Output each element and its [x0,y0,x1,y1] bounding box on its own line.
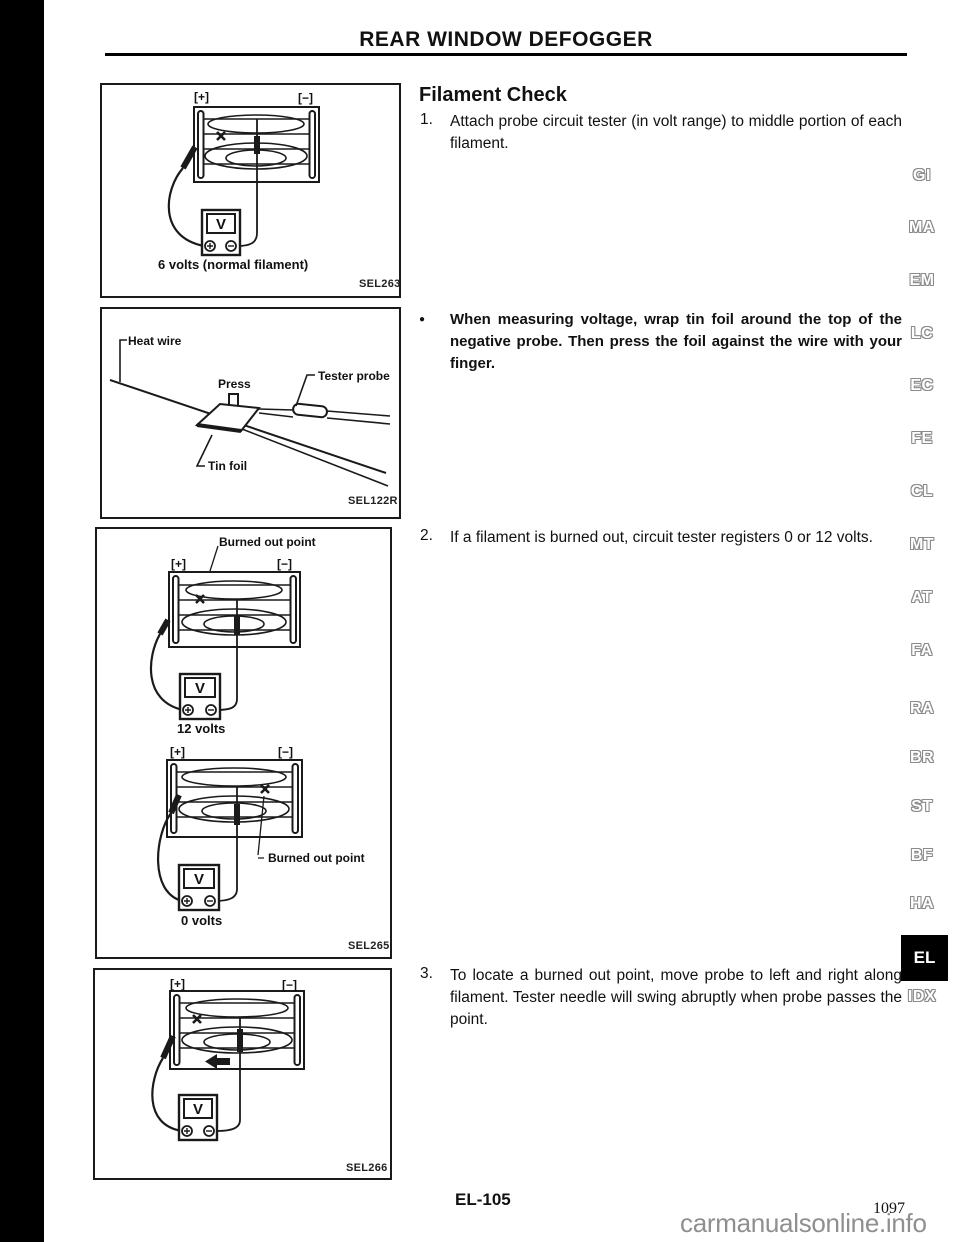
margin-tab-mt: MT [900,536,944,554]
margin-tab-ec: EC [900,377,944,395]
step-number: 3. [420,965,433,983]
leader-line [296,375,315,406]
margin-tab-idx: IDX [900,988,944,1006]
figure-caption: 6 volts (normal filament) [158,257,308,272]
figure-normal-filament: V [+] [−] 6 volts (normal filament) SEL2… [100,83,401,298]
step-number: 2. [420,527,433,545]
margin-tab-ma: MA [900,219,944,237]
minus-terminal-label: [−] [277,557,292,571]
burned-out-drawing: V V [97,529,390,957]
plus-terminal-label: [+] [170,745,185,759]
margin-tab-ra: RA [900,700,944,718]
margin-tab-at: AT [900,589,944,607]
step-text: Attach probe circuit tester (in volt ran… [450,111,902,155]
header-rule [105,53,907,56]
minus-terminal-label: [−] [282,978,297,992]
burned-out-point-label: Burned out point [219,535,316,549]
margin-tab-st: ST [900,798,944,816]
minus-terminal-label: [−] [298,91,313,105]
tester-probe-tip [160,620,168,634]
step-text: To locate a burned out point, move probe… [450,965,902,1031]
figure-tin-foil-probe: Heat wire Press Tester probe Tin foil SE… [100,307,401,519]
press-label: Press [218,377,251,391]
section-title: Filament Check [419,84,567,107]
locate-point-drawing: V [95,970,390,1178]
step-text: If a filament is burned out, circuit tes… [450,527,902,549]
manual-page: REAR WINDOW DEFOGGER [0,0,960,1242]
page-code: EL-105 [455,1190,511,1210]
scan-binding-edge [0,0,44,1242]
figure-locate-point: V [+] [−] SEL266 [93,968,392,1180]
margin-tab-fe: FE [900,430,944,448]
bullet-icon: ● [419,314,425,325]
burned-out-point-label: Burned out point [268,851,365,865]
voltmeter-v-label: V [216,216,226,233]
margin-tab-fa: FA [900,642,944,660]
margin-tab-bf: BF [900,847,944,865]
step-number: 1. [420,111,433,129]
heat-wire-line [110,380,386,473]
figure-caption: 12 volts [177,721,225,736]
tin-foil-label: Tin foil [208,459,247,473]
margin-tab-cl: CL [900,483,944,501]
figure-burned-out-check: V V Burned out point [+] [−] 12 volts [+… [95,527,392,959]
margin-tab-gi: GI [900,167,944,185]
margin-tab-ha: HA [900,895,944,913]
margin-tab-el-active: EL [901,935,948,981]
voltmeter-v-label: V [193,1101,203,1118]
page-title: REAR WINDOW DEFOGGER [105,28,907,52]
plus-terminal-label: [+] [170,977,185,991]
figure-code: SEL122R [348,495,398,507]
tester-probe-label: Tester probe [318,369,390,383]
minus-terminal-label: [−] [278,745,293,759]
voltmeter-v-label: V [194,871,204,888]
probe-handle-shape [293,403,328,417]
note-text: When measuring voltage, wrap tin foil ar… [450,309,902,375]
figure-caption: 0 volts [181,913,222,928]
voltmeter-v-label: V [195,680,205,697]
figure-code: SEL266 [346,1162,388,1174]
figure-code: SEL265 [348,940,390,952]
heat-wire-label: Heat wire [128,334,181,348]
figure-code: SEL263 [359,278,401,290]
margin-tab-em: EM [900,272,944,290]
margin-tab-br: BR [900,749,944,767]
plus-terminal-label: [+] [171,557,186,571]
watermark-text: carmanualsonline.info [680,1208,927,1239]
plus-terminal-label: [+] [194,90,209,104]
margin-tab-lc: LC [900,325,944,343]
